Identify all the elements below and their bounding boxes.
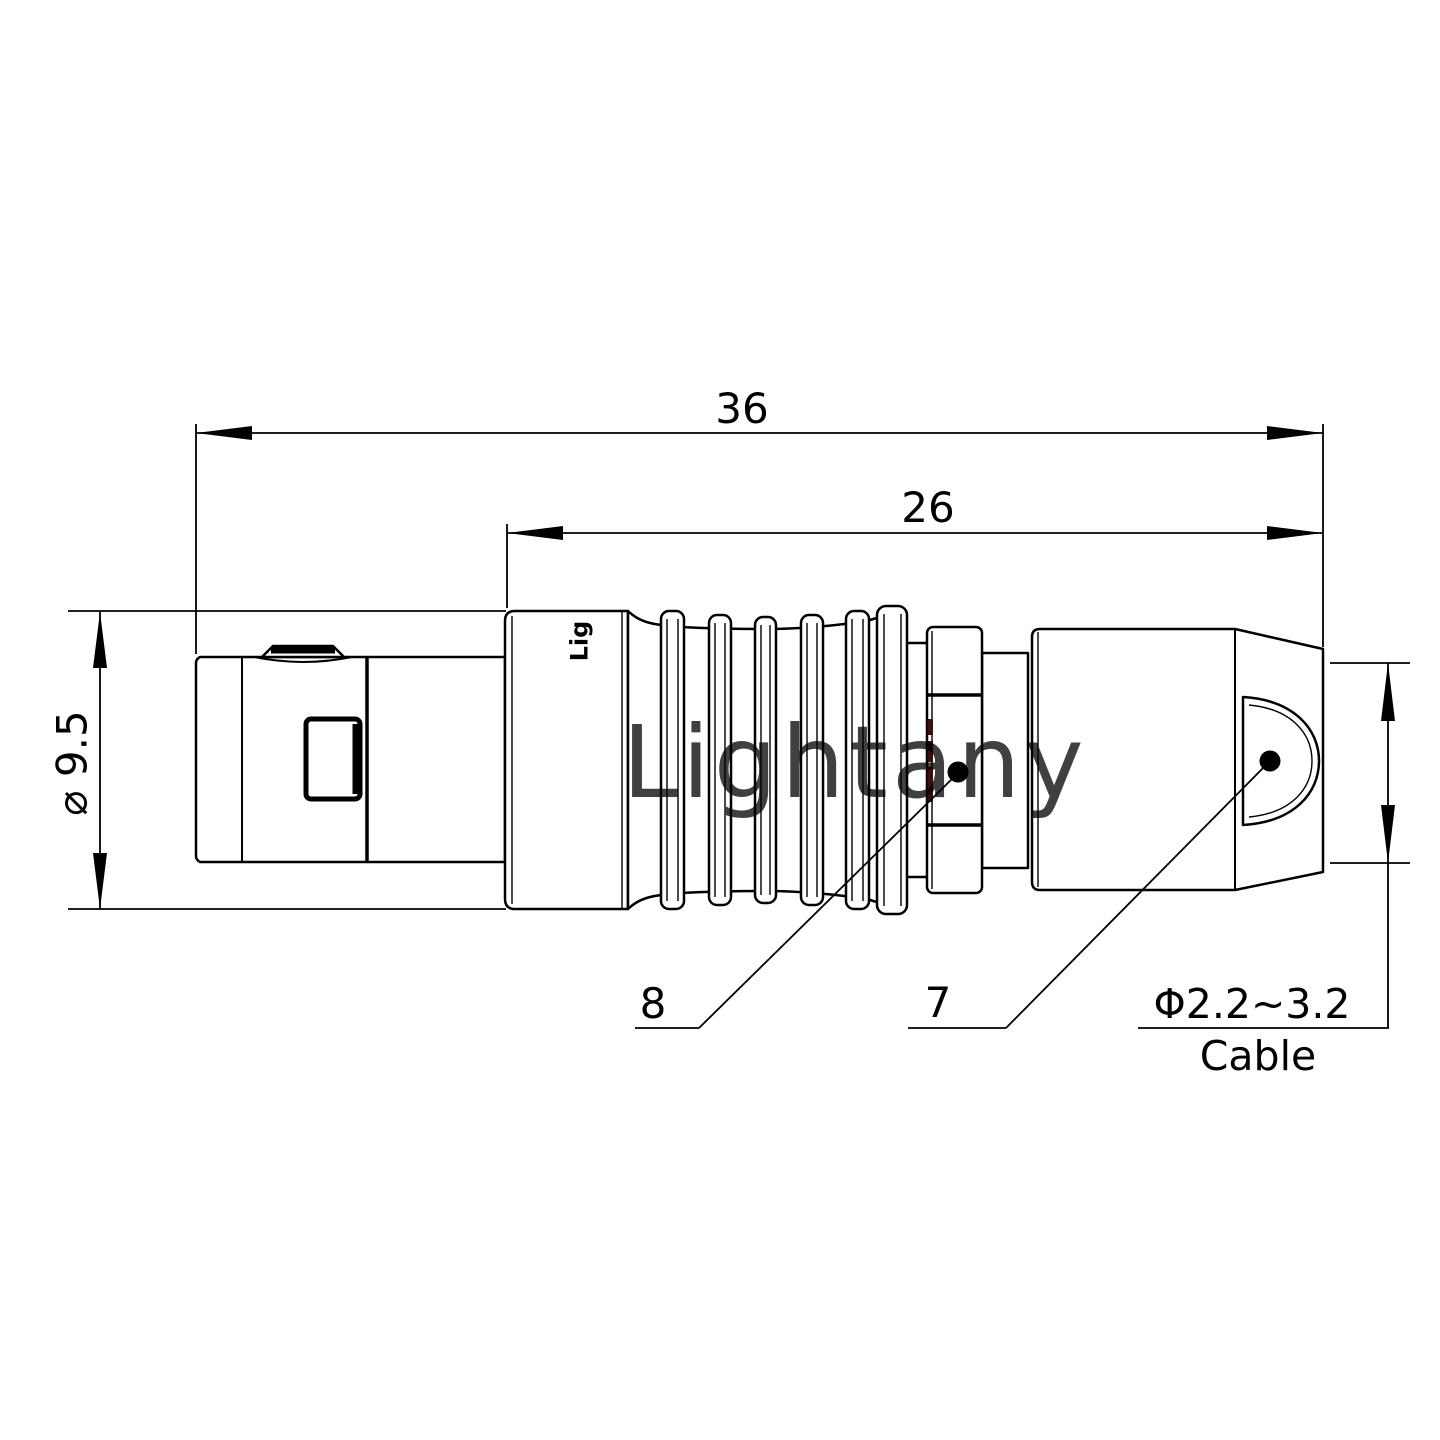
arrowhead-right xyxy=(1267,426,1323,440)
dimension-value-26: 26 xyxy=(901,483,954,532)
cable-label: Cable xyxy=(1200,1032,1316,1080)
arrowhead-left xyxy=(507,526,563,540)
dimension-value-36: 36 xyxy=(715,384,768,433)
arrowhead-top xyxy=(1381,663,1395,721)
callout-number-7: 7 xyxy=(925,978,952,1027)
arrowhead-bottom xyxy=(93,853,107,909)
watermark-text: Lightany xyxy=(622,704,1087,821)
arrowhead-right xyxy=(1267,526,1323,540)
arrowhead-bottom xyxy=(1381,805,1395,863)
arrowhead-left xyxy=(196,426,252,440)
dimension-rear-length: 26 xyxy=(507,483,1323,608)
drawing-page: Lig Lightany 36 26 ⌀ 9.5 xyxy=(0,0,1440,1440)
cable-range-value: Φ2.2~3.2 xyxy=(1153,980,1350,1028)
shell-engraving: Lig xyxy=(565,621,593,662)
dimension-value-diameter: ⌀ 9.5 xyxy=(48,710,97,815)
dimension-overall-length: 36 xyxy=(196,384,1323,654)
connector-drawing-canvas: Lig Lightany 36 26 ⌀ 9.5 xyxy=(0,0,1440,1440)
key-window xyxy=(306,719,360,799)
arrowhead-top xyxy=(93,612,107,668)
callout-number-8: 8 xyxy=(640,979,667,1028)
